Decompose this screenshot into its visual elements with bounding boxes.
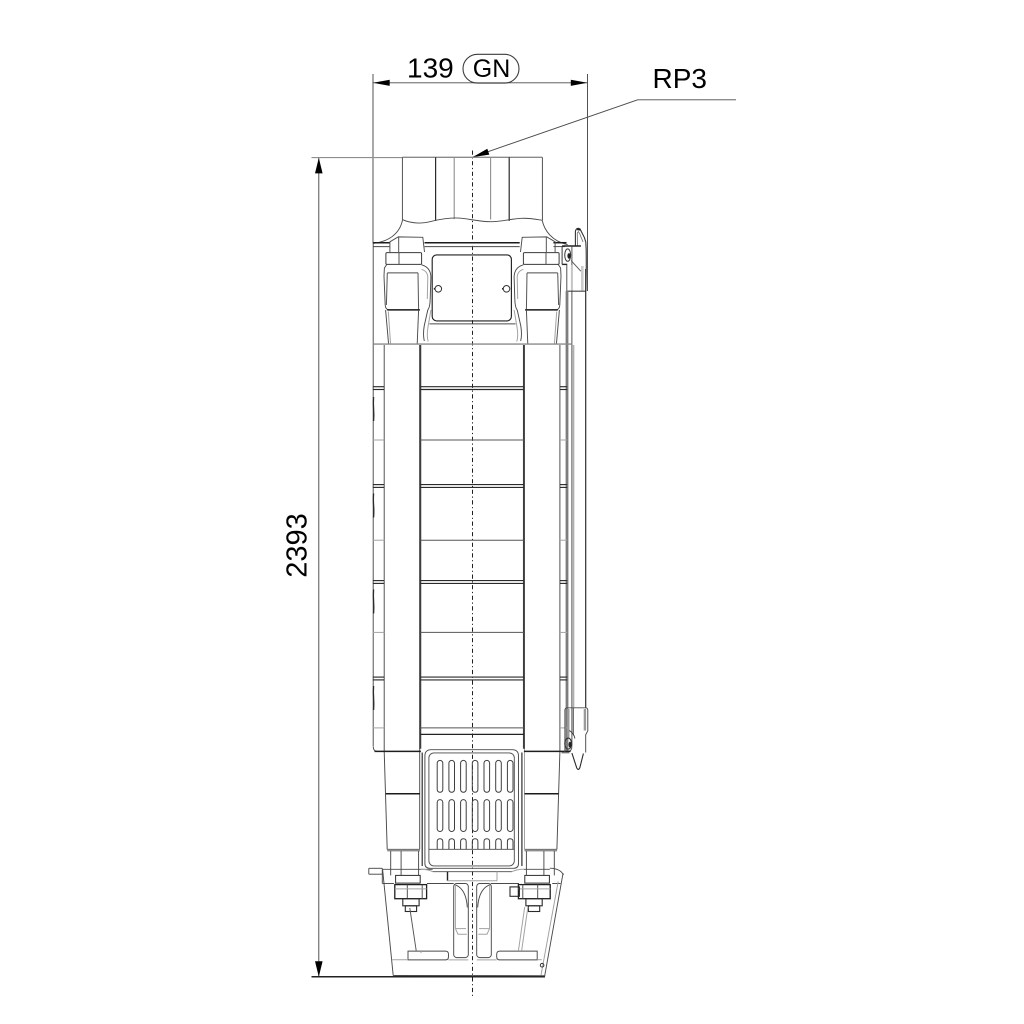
svg-text:RP3: RP3 [653, 63, 707, 94]
svg-text:139: 139 [407, 53, 454, 84]
svg-text:2393: 2393 [282, 513, 314, 578]
svg-text:GN: GN [473, 55, 511, 83]
